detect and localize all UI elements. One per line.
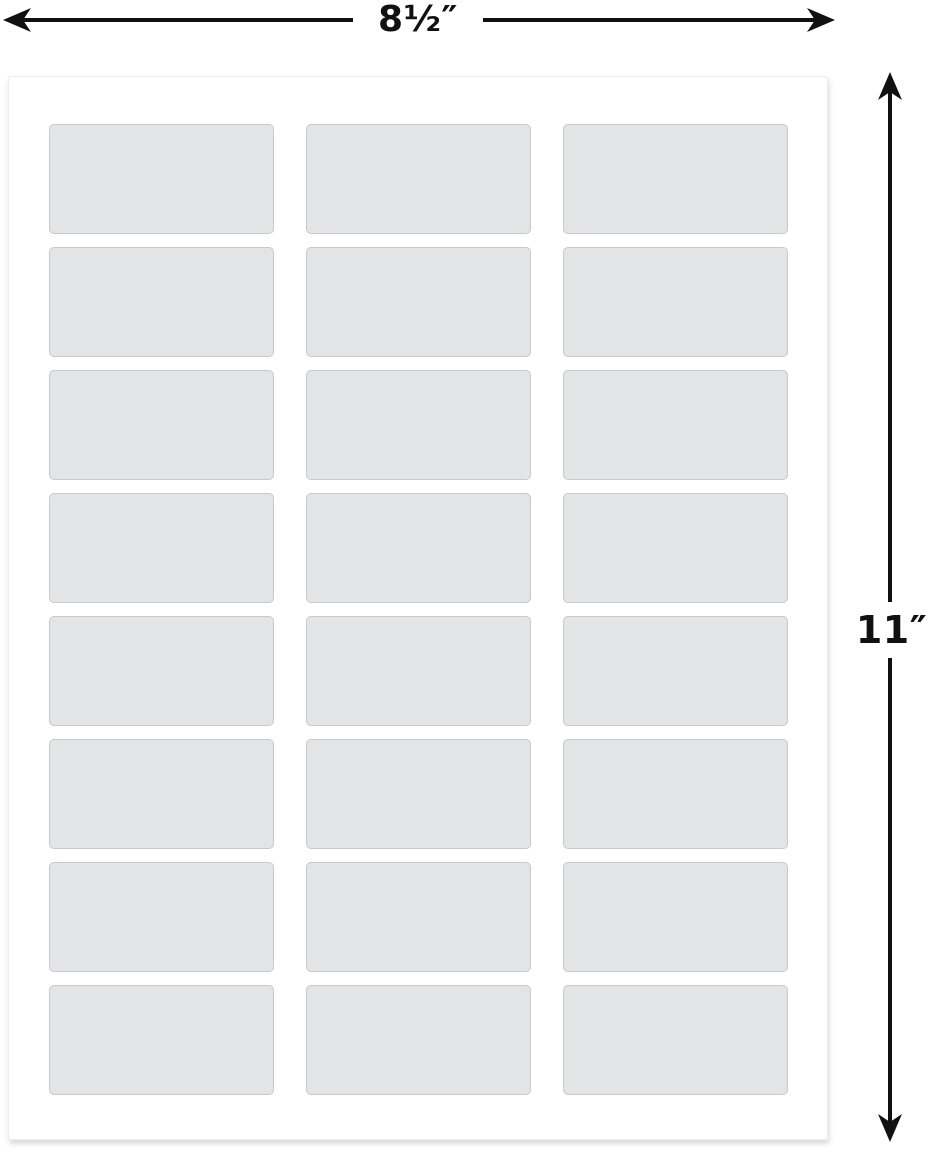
label-cell <box>306 493 531 603</box>
label-cell <box>563 493 788 603</box>
label-cell <box>49 985 274 1095</box>
product-dimension-diagram: 8½″ 11″ <box>0 0 932 1158</box>
label-cell <box>49 493 274 603</box>
label-cell <box>563 616 788 726</box>
label-cell <box>306 616 531 726</box>
label-cell <box>49 739 274 849</box>
label-cell <box>306 862 531 972</box>
label-cell <box>306 739 531 849</box>
height-dimension-label: 11″ <box>851 602 932 658</box>
label-cell <box>563 739 788 849</box>
label-cell <box>49 616 274 726</box>
width-dimension-label: 8½″ <box>353 0 483 41</box>
label-cell <box>306 985 531 1095</box>
label-cell <box>49 370 274 480</box>
label-cell <box>563 862 788 972</box>
label-sheet <box>8 76 828 1140</box>
label-cell <box>306 247 531 357</box>
label-cell <box>563 124 788 234</box>
label-cell <box>49 124 274 234</box>
label-cell <box>563 247 788 357</box>
label-cell <box>563 370 788 480</box>
label-cell <box>49 247 274 357</box>
label-cell <box>563 985 788 1095</box>
label-cell <box>49 862 274 972</box>
label-cell <box>306 124 531 234</box>
label-grid <box>49 124 788 1095</box>
label-cell <box>306 370 531 480</box>
